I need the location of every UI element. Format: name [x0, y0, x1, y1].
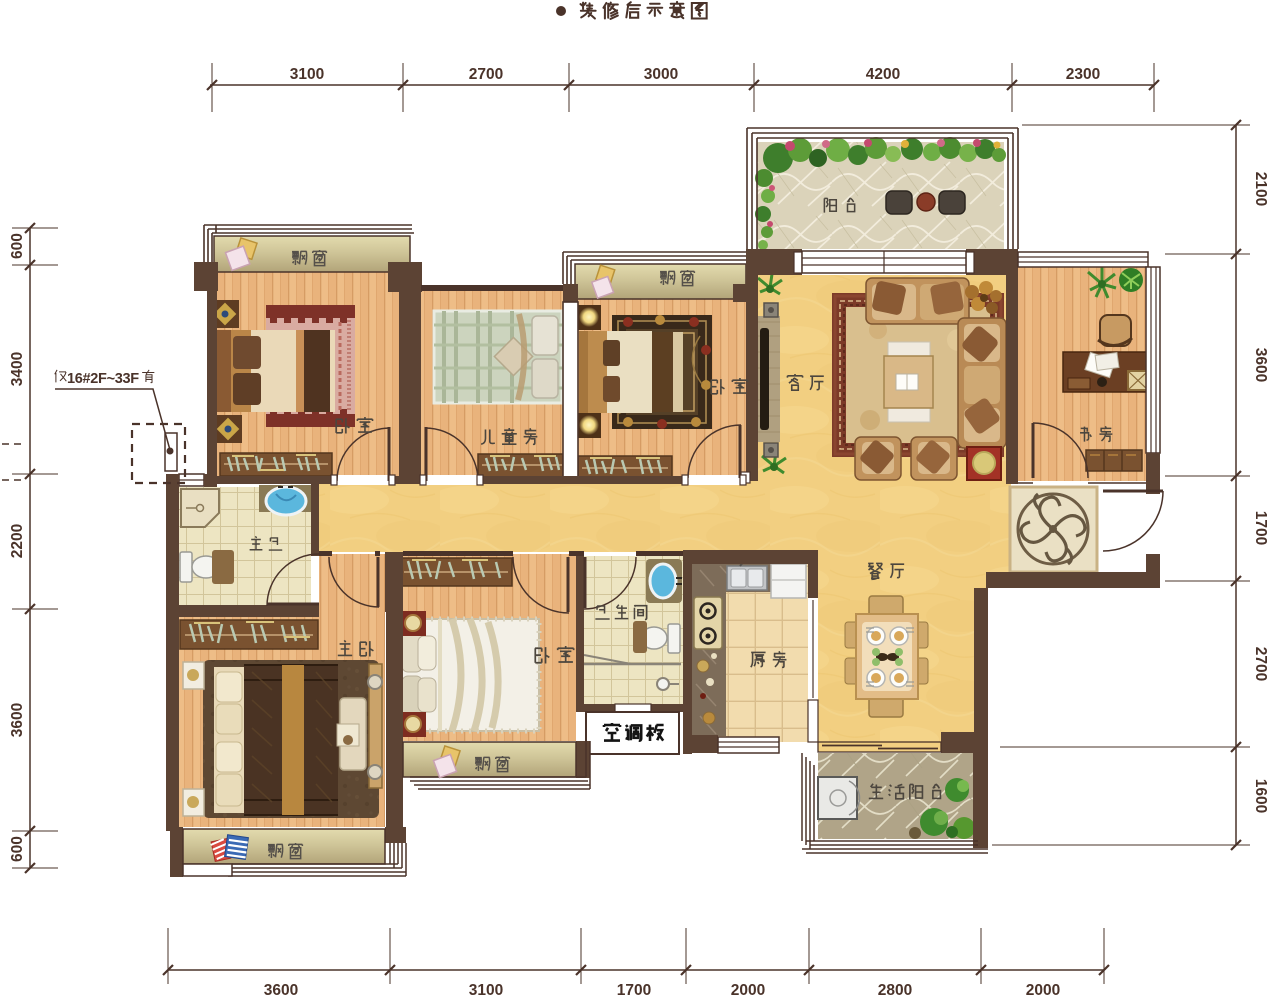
svg-text:2000: 2000 — [731, 982, 765, 999]
svg-text:3100: 3100 — [290, 66, 324, 83]
svg-text:2700: 2700 — [469, 66, 503, 83]
svg-text:2200: 2200 — [9, 524, 26, 558]
svg-text:1600: 1600 — [1252, 779, 1268, 813]
svg-text:1700: 1700 — [1252, 511, 1268, 545]
svg-text:3400: 3400 — [9, 352, 26, 386]
svg-text:16#2F~33F: 16#2F~33F — [67, 371, 139, 387]
svg-text:2100: 2100 — [1252, 172, 1268, 206]
svg-text:3000: 3000 — [644, 66, 678, 83]
svg-text:3600: 3600 — [264, 982, 298, 999]
svg-text:3600: 3600 — [9, 703, 26, 737]
svg-text:3100: 3100 — [469, 982, 503, 999]
svg-text:2300: 2300 — [1066, 66, 1100, 83]
svg-text:2800: 2800 — [878, 982, 912, 999]
svg-text:3600: 3600 — [1252, 348, 1268, 382]
svg-text:2000: 2000 — [1026, 982, 1060, 999]
svg-text:600: 600 — [9, 233, 26, 259]
svg-text:4200: 4200 — [866, 66, 900, 83]
svg-text:2700: 2700 — [1252, 647, 1268, 681]
svg-text:600: 600 — [9, 836, 26, 862]
svg-text:1700: 1700 — [617, 982, 651, 999]
